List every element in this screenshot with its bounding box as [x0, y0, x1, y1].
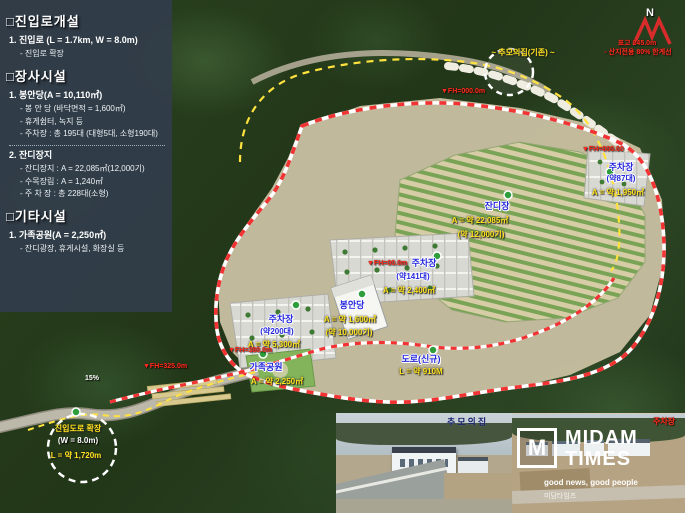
parking-center-count: (약141대): [396, 273, 429, 281]
photo2-caption: 주차장: [653, 418, 675, 426]
family-park-area: A = 약 2,250㎡: [251, 378, 303, 386]
ossuary-area: A = 약 1,600㎡: [324, 316, 376, 324]
legend-panel: □진입로개설 1. 진입로 (L = 1.7km, W = 8.0m) - 진입…: [0, 0, 172, 312]
inset-photo-building: [336, 413, 512, 513]
existing-memorial-label: ~ 추모의집(기존) ~: [491, 49, 554, 57]
fh-marker: ▼FH=325.0m: [143, 363, 187, 370]
logo-tagline: good news, good people: [544, 478, 638, 487]
family-park-name: 가족공원: [249, 363, 282, 372]
legend-line: - 잔디장지 : A = 22,085㎡(12,000기): [20, 164, 168, 174]
legend-line: - 주 차 장 : 총 228대(소형): [20, 189, 168, 199]
compass-north-label: N: [646, 8, 654, 19]
limit-note-line1: 표고 245.0m: [618, 40, 657, 47]
legend-line: 1. 봉안당(A = 10,110㎡): [9, 90, 168, 101]
access-length: L = 약 1,720m: [51, 452, 102, 460]
photo1-caption: 추모의집: [447, 418, 488, 427]
legend-line: 2. 잔디장지: [9, 150, 168, 161]
access-road: [0, 371, 258, 428]
ossuary-count: (약 10,000기): [326, 329, 373, 337]
lawn-name: 잔디장: [485, 202, 510, 211]
logo-subtext: 미담타임즈: [544, 491, 576, 501]
parking-right-name: 주차장: [609, 163, 634, 172]
midam-monogram-icon: M: [517, 428, 557, 468]
legend-divider: [9, 145, 165, 146]
ossuary-name: 봉안당: [340, 301, 365, 310]
parking-right-count: (약87대): [607, 175, 636, 183]
section-title-funeral: □장사시설: [6, 66, 168, 85]
fh-marker: ▼FH=000.00: [582, 146, 624, 153]
parking-left-name: 주차장: [269, 315, 294, 324]
access-width: (W = 8.0m): [58, 437, 98, 445]
fh-marker: ▼FH=000.0m: [441, 88, 485, 95]
access-expansion-title: 진입도로 확장: [55, 425, 101, 433]
section-title-other: □기타시설: [6, 206, 168, 225]
parking-right-area: A = 약 1,950㎡: [592, 189, 644, 197]
legend-line: - 잔디광장, 휴게시설, 화장실 등: [20, 244, 168, 254]
legend-line: 1. 진입로 (L = 1.7km, W = 8.0m): [9, 35, 168, 46]
section-title-access: □진입로개설: [6, 11, 168, 30]
legend-line: - 주차장 : 총 195대 (대형5대, 소형190대): [20, 129, 168, 139]
fh-marker: ▼FH=00.0m: [367, 260, 407, 267]
logo-text-times: TIMES: [565, 448, 631, 471]
legend-line: - 진입로 확장: [20, 49, 168, 59]
parking-left-count: (약200대): [260, 328, 293, 336]
new-road-length: L = 약 910M: [399, 368, 442, 376]
parking-center-name: 주차장: [412, 259, 437, 268]
site-plan-screenshot: □진입로개설 1. 진입로 (L = 1.7km, W = 8.0m) - 진입…: [0, 0, 685, 513]
legend-line: - 수목장림 : A = 1,240㎡: [20, 177, 168, 187]
road-grade-label: 15%: [85, 375, 99, 382]
lawn-count: (약 12,000기): [458, 231, 505, 239]
new-road-name: 도로(신규): [401, 355, 440, 364]
fh-marker: ▼FH=380.0m: [228, 347, 272, 354]
photo-foreground: [336, 499, 512, 513]
legend-line: - 휴게쉼터, 녹지 등: [20, 117, 168, 127]
parking-center-area: A = 약 2,400㎡: [383, 287, 435, 295]
lawn-area: A = 약 22,085㎡: [452, 217, 509, 225]
legend-line: 1. 가족공원(A = 2,250㎡): [9, 230, 168, 241]
limit-note-line2: - 산지전용 80% 한계선: [604, 49, 671, 56]
logo-text-midam: MIDAM: [565, 427, 638, 450]
legend-line: - 봉 안 당 (바닥면적 = 1,600㎡): [20, 104, 168, 114]
